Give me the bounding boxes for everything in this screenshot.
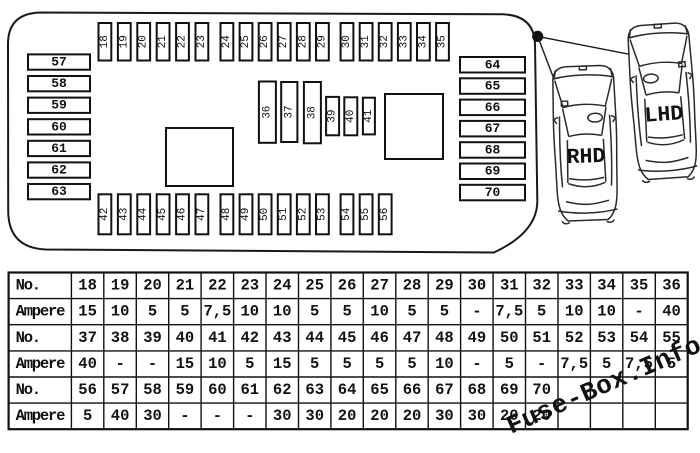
svg-text:10: 10 xyxy=(565,303,584,321)
svg-text:20: 20 xyxy=(403,407,422,425)
svg-text:28: 28 xyxy=(297,35,309,48)
svg-text:23: 23 xyxy=(196,35,208,48)
svg-text:53: 53 xyxy=(597,329,616,347)
svg-text:55: 55 xyxy=(360,208,372,221)
svg-text:5: 5 xyxy=(407,355,416,373)
svg-text:40: 40 xyxy=(78,355,97,373)
svg-text:7,5: 7,5 xyxy=(560,355,588,373)
svg-text:26: 26 xyxy=(259,35,271,48)
svg-text:54: 54 xyxy=(630,329,649,347)
svg-text:40: 40 xyxy=(662,303,681,321)
svg-text:10: 10 xyxy=(208,355,227,373)
svg-text:65: 65 xyxy=(370,381,389,399)
svg-text:42: 42 xyxy=(240,329,259,347)
svg-text:10: 10 xyxy=(597,303,616,321)
svg-text:60: 60 xyxy=(208,381,227,399)
svg-text:5: 5 xyxy=(342,303,351,321)
svg-text:10: 10 xyxy=(370,303,389,321)
svg-text:56: 56 xyxy=(379,208,391,221)
svg-text:38: 38 xyxy=(306,106,318,119)
svg-text:47: 47 xyxy=(403,329,422,347)
svg-text:LHD: LHD xyxy=(644,102,684,129)
svg-text:29: 29 xyxy=(316,35,328,48)
svg-text:-: - xyxy=(472,303,481,321)
svg-text:-: - xyxy=(537,355,546,373)
svg-text:53: 53 xyxy=(316,208,328,221)
svg-text:23: 23 xyxy=(240,277,259,295)
svg-text:-: - xyxy=(634,303,643,321)
svg-text:46: 46 xyxy=(177,208,189,221)
svg-text:38: 38 xyxy=(111,329,130,347)
svg-text:30: 30 xyxy=(341,35,353,48)
svg-text:-: - xyxy=(213,407,222,425)
svg-text:5: 5 xyxy=(407,303,416,321)
svg-text:-: - xyxy=(148,355,157,373)
svg-text:10: 10 xyxy=(273,303,292,321)
svg-text:51: 51 xyxy=(278,207,290,221)
svg-text:44: 44 xyxy=(305,329,324,347)
svg-text:21: 21 xyxy=(176,277,195,295)
svg-text:10: 10 xyxy=(240,303,259,321)
svg-text:39: 39 xyxy=(327,109,339,122)
svg-text:19: 19 xyxy=(111,277,130,295)
svg-text:36: 36 xyxy=(662,277,681,295)
svg-text:18: 18 xyxy=(99,35,111,48)
svg-text:30: 30 xyxy=(273,407,292,425)
svg-text:32: 32 xyxy=(532,277,551,295)
svg-text:44: 44 xyxy=(138,207,150,221)
svg-text:30: 30 xyxy=(435,407,454,425)
svg-text:58: 58 xyxy=(51,76,67,91)
svg-text:Ampere: Ampere xyxy=(16,407,66,425)
svg-text:49: 49 xyxy=(240,208,252,221)
svg-text:67: 67 xyxy=(435,381,454,399)
svg-text:37: 37 xyxy=(78,329,97,347)
svg-text:No.: No. xyxy=(16,329,40,347)
svg-text:56: 56 xyxy=(78,381,97,399)
svg-text:24: 24 xyxy=(273,277,292,295)
svg-text:36: 36 xyxy=(261,106,273,119)
svg-text:31: 31 xyxy=(360,35,372,49)
svg-text:5: 5 xyxy=(180,303,189,321)
svg-text:40: 40 xyxy=(111,407,130,425)
svg-text:57: 57 xyxy=(51,55,67,70)
svg-text:64: 64 xyxy=(338,381,357,399)
svg-text:5: 5 xyxy=(440,303,449,321)
svg-text:68: 68 xyxy=(468,381,487,399)
svg-text:62: 62 xyxy=(51,163,67,178)
svg-text:63: 63 xyxy=(305,381,324,399)
svg-text:22: 22 xyxy=(208,277,227,295)
svg-text:58: 58 xyxy=(143,381,162,399)
svg-text:15: 15 xyxy=(273,355,292,373)
svg-text:33: 33 xyxy=(398,35,410,48)
svg-text:41: 41 xyxy=(363,109,375,123)
svg-text:27: 27 xyxy=(370,277,389,295)
svg-text:5: 5 xyxy=(245,355,254,373)
svg-text:20: 20 xyxy=(138,35,150,48)
svg-text:64: 64 xyxy=(485,57,501,72)
svg-text:47: 47 xyxy=(196,208,208,221)
svg-text:59: 59 xyxy=(51,98,67,113)
svg-text:20: 20 xyxy=(143,277,162,295)
svg-text:-: - xyxy=(245,407,254,425)
svg-text:43: 43 xyxy=(118,208,130,221)
svg-text:21: 21 xyxy=(157,35,169,49)
svg-text:46: 46 xyxy=(370,329,389,347)
svg-text:18: 18 xyxy=(78,277,97,295)
svg-text:5: 5 xyxy=(83,407,92,425)
svg-text:5: 5 xyxy=(505,355,514,373)
svg-text:40: 40 xyxy=(345,110,357,123)
svg-text:5: 5 xyxy=(310,303,319,321)
svg-text:67: 67 xyxy=(485,121,501,136)
svg-text:20: 20 xyxy=(370,407,389,425)
svg-text:35: 35 xyxy=(437,35,449,48)
svg-text:No.: No. xyxy=(16,381,40,399)
svg-text:24: 24 xyxy=(221,35,233,49)
svg-text:20: 20 xyxy=(338,407,357,425)
svg-text:69: 69 xyxy=(500,381,519,399)
svg-text:66: 66 xyxy=(485,100,501,115)
svg-text:34: 34 xyxy=(417,35,429,49)
svg-text:No.: No. xyxy=(16,277,40,295)
svg-text:51: 51 xyxy=(532,329,551,347)
svg-text:59: 59 xyxy=(176,381,195,399)
svg-text:15: 15 xyxy=(176,355,195,373)
svg-text:10: 10 xyxy=(435,355,454,373)
svg-text:5: 5 xyxy=(375,355,384,373)
svg-text:48: 48 xyxy=(435,329,454,347)
svg-text:22: 22 xyxy=(177,35,189,48)
svg-text:30: 30 xyxy=(468,407,487,425)
svg-text:30: 30 xyxy=(143,407,162,425)
svg-text:30: 30 xyxy=(305,407,324,425)
svg-text:-: - xyxy=(115,355,124,373)
svg-text:34: 34 xyxy=(597,277,616,295)
svg-text:19: 19 xyxy=(118,35,130,48)
svg-text:25: 25 xyxy=(240,35,252,48)
svg-text:RHD: RHD xyxy=(566,145,606,170)
svg-text:45: 45 xyxy=(338,329,357,347)
svg-text:63: 63 xyxy=(51,184,67,199)
svg-text:5: 5 xyxy=(310,355,319,373)
svg-text:10: 10 xyxy=(111,303,130,321)
svg-text:35: 35 xyxy=(630,277,649,295)
svg-text:52: 52 xyxy=(565,329,584,347)
svg-text:65: 65 xyxy=(485,79,501,94)
svg-text:57: 57 xyxy=(111,381,130,399)
svg-text:50: 50 xyxy=(500,329,519,347)
svg-text:Ampere: Ampere xyxy=(16,355,66,373)
svg-text:27: 27 xyxy=(278,35,290,48)
svg-text:5: 5 xyxy=(342,355,351,373)
svg-text:40: 40 xyxy=(176,329,195,347)
svg-text:25: 25 xyxy=(305,277,324,295)
svg-text:5: 5 xyxy=(537,303,546,321)
svg-text:42: 42 xyxy=(99,208,111,221)
svg-text:5: 5 xyxy=(148,303,157,321)
svg-text:61: 61 xyxy=(51,141,67,156)
svg-text:50: 50 xyxy=(259,208,271,221)
svg-text:-: - xyxy=(180,407,189,425)
svg-text:30: 30 xyxy=(468,277,487,295)
svg-text:15: 15 xyxy=(78,303,97,321)
svg-text:28: 28 xyxy=(403,277,422,295)
svg-text:37: 37 xyxy=(283,105,295,118)
svg-text:Ampere: Ampere xyxy=(16,303,66,321)
svg-text:7,5: 7,5 xyxy=(203,303,231,321)
svg-text:60: 60 xyxy=(51,119,67,134)
svg-text:70: 70 xyxy=(485,185,501,200)
svg-text:26: 26 xyxy=(338,277,357,295)
svg-text:52: 52 xyxy=(297,208,309,221)
svg-text:32: 32 xyxy=(379,35,391,48)
svg-text:66: 66 xyxy=(403,381,422,399)
svg-text:45: 45 xyxy=(157,208,169,221)
svg-text:41: 41 xyxy=(208,329,227,347)
svg-text:39: 39 xyxy=(143,329,162,347)
svg-text:54: 54 xyxy=(341,207,353,221)
svg-text:68: 68 xyxy=(485,142,501,157)
svg-text:-: - xyxy=(472,355,481,373)
svg-text:62: 62 xyxy=(273,381,292,399)
svg-text:33: 33 xyxy=(565,277,584,295)
svg-text:43: 43 xyxy=(273,329,292,347)
svg-text:29: 29 xyxy=(435,277,454,295)
svg-text:61: 61 xyxy=(240,381,259,399)
svg-text:31: 31 xyxy=(500,277,519,295)
svg-text:49: 49 xyxy=(468,329,487,347)
svg-text:48: 48 xyxy=(221,208,233,221)
svg-text:7,5: 7,5 xyxy=(495,303,523,321)
svg-text:69: 69 xyxy=(485,164,501,179)
